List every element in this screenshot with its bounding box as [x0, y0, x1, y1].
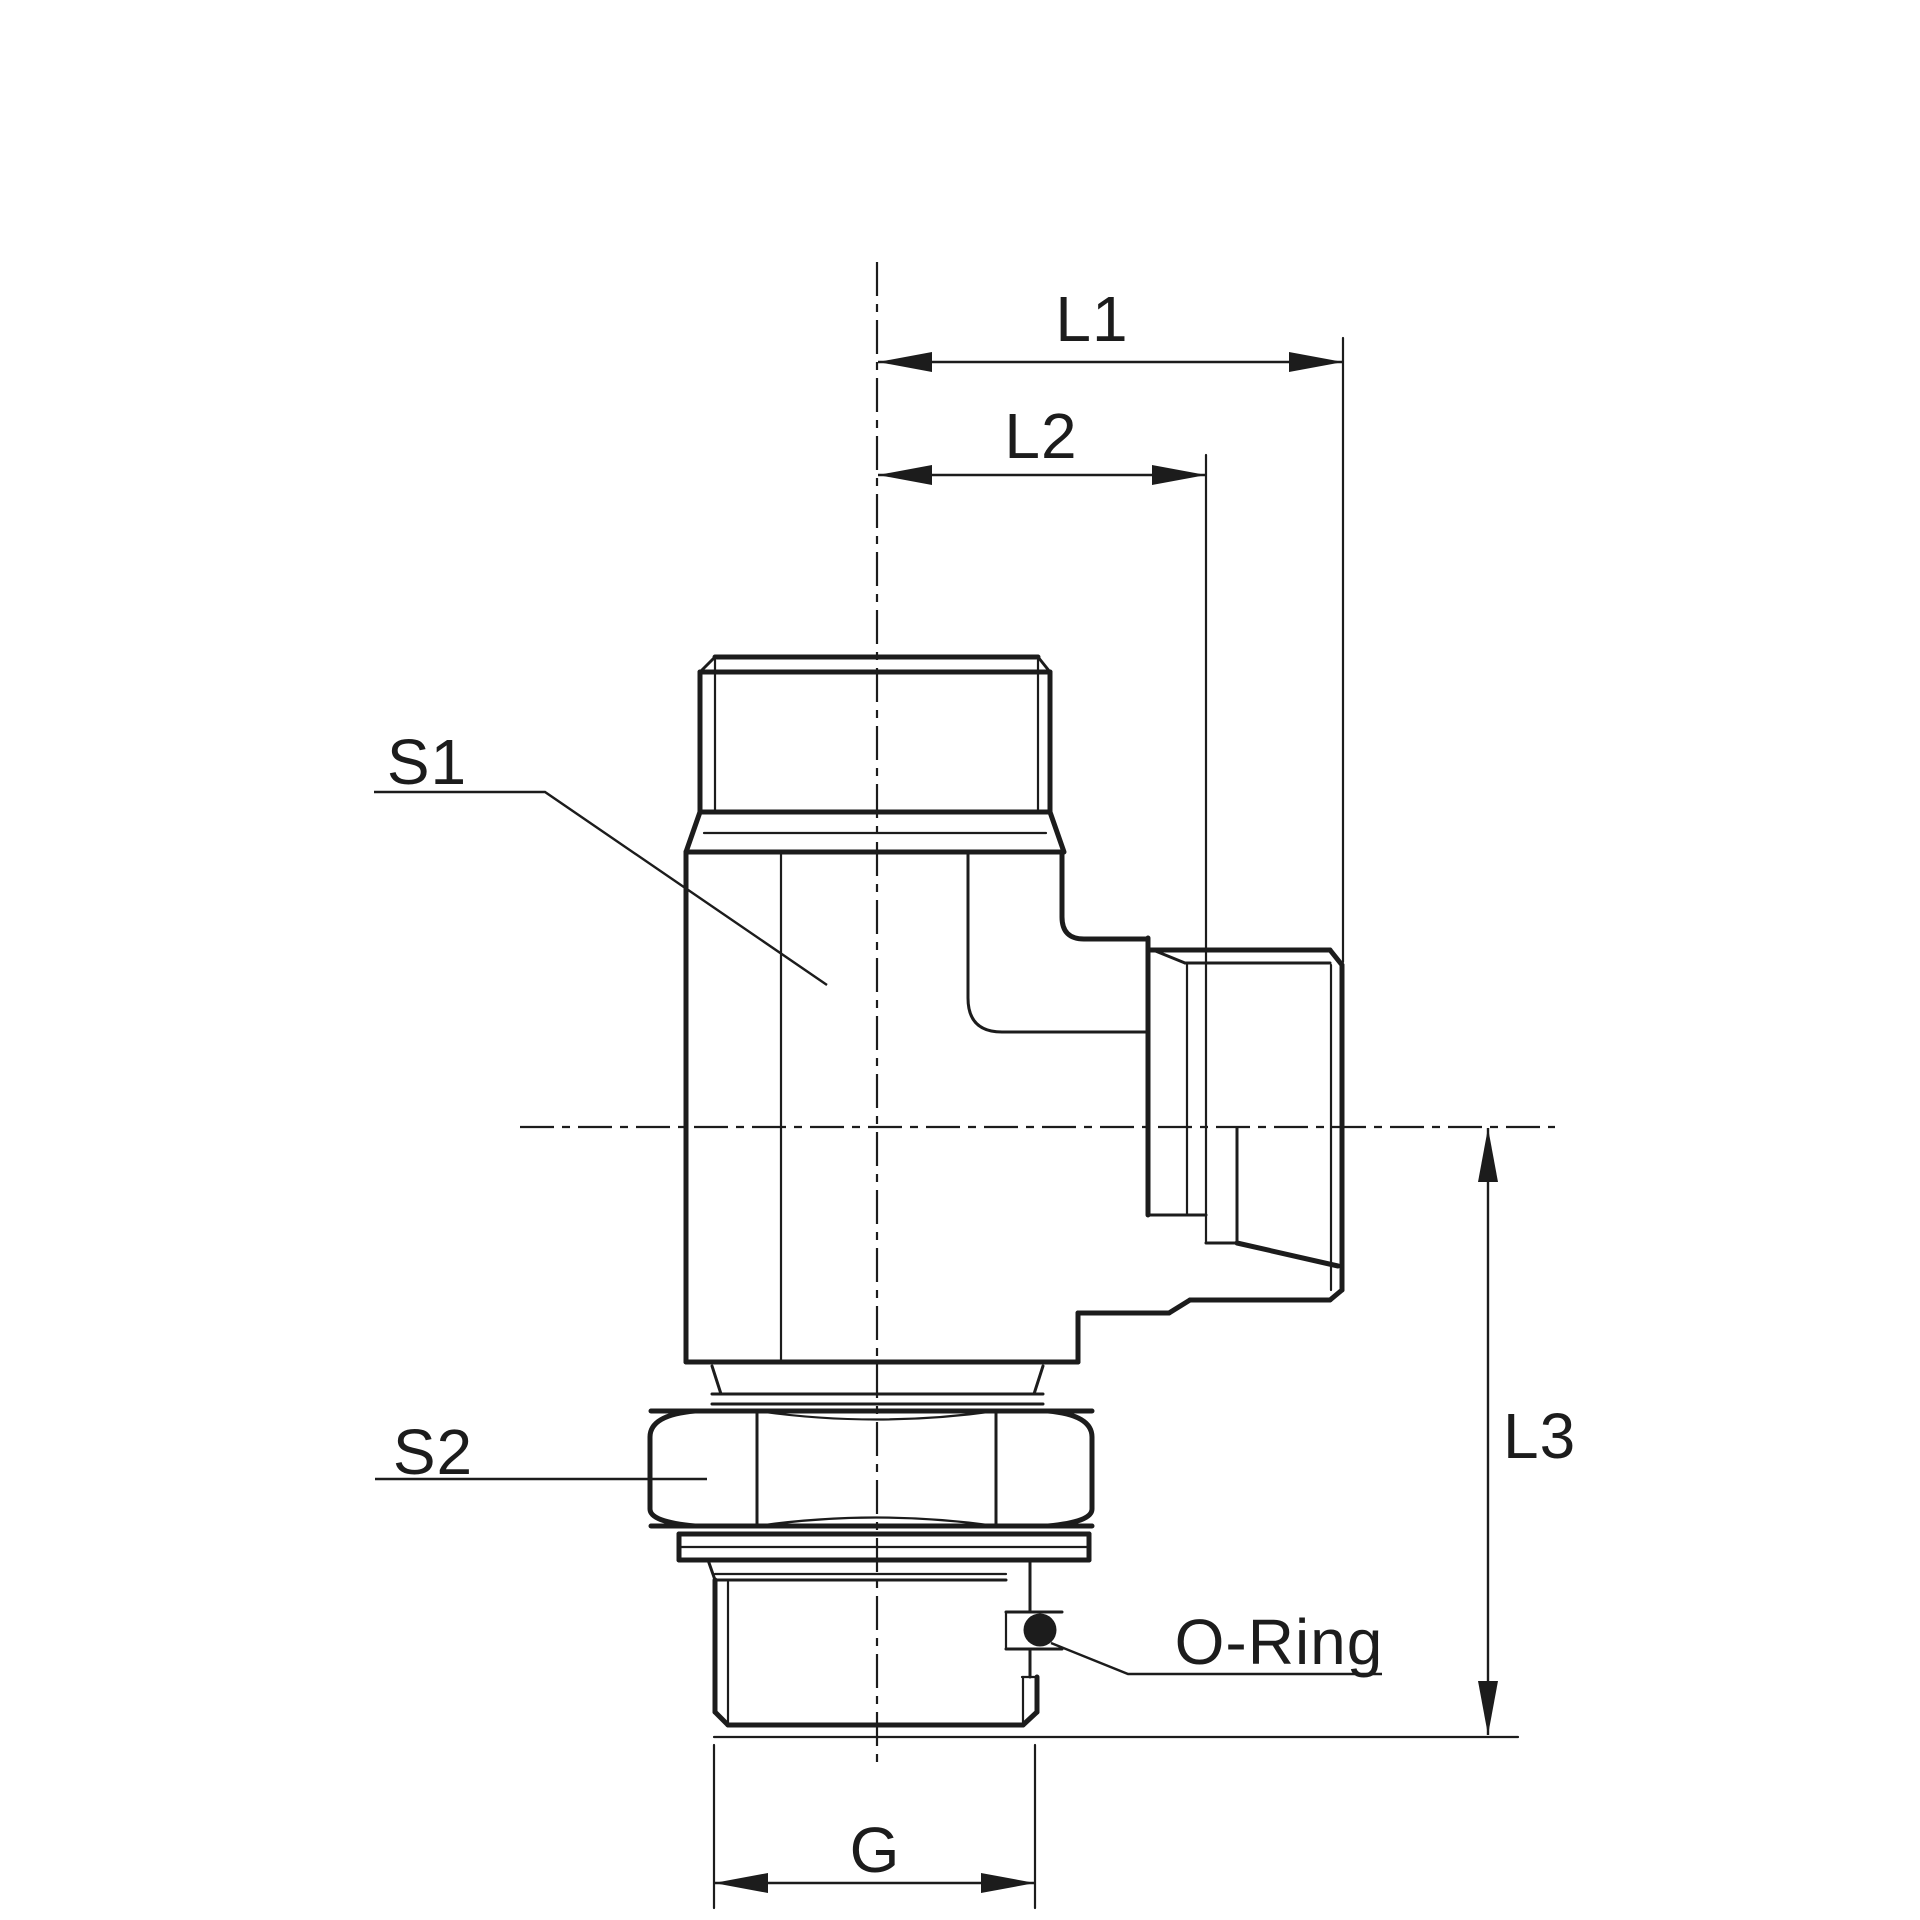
top-port-stud: [686, 657, 1064, 852]
l1-label: L1: [1055, 283, 1128, 355]
centerlines: [520, 262, 1555, 1768]
s2-label: S2: [393, 1416, 473, 1488]
s1-label: S1: [387, 726, 467, 798]
dimension-g: G: [714, 1745, 1035, 1908]
l2-arrow-right: [1152, 465, 1206, 485]
top-port-flare-right: [1050, 812, 1064, 852]
l1-arrow-left: [878, 352, 932, 372]
l3-arrow-top: [1478, 1128, 1498, 1182]
nut-left-face: [650, 1411, 695, 1526]
technical-drawing-page: L1 L2 L3 G S1 S2 O-Ring: [0, 0, 1920, 1920]
fitting-diagram: L1 L2 L3 G S1 S2 O-Ring: [0, 0, 1920, 1920]
side-port-stud: [1078, 938, 1342, 1362]
l2-label: L2: [1004, 400, 1077, 472]
l3-arrow-bottom: [1478, 1681, 1498, 1735]
o-ring: [1024, 1614, 1057, 1647]
arm-end-chamfer-top: [1330, 950, 1342, 965]
dimension-l3: L3: [1478, 1128, 1576, 1735]
g-label: G: [850, 1814, 901, 1886]
collar-chamfer-right: [1034, 1366, 1043, 1394]
top-port-flare-left: [686, 812, 700, 852]
arm-internal-cone: [1237, 1243, 1338, 1266]
g-arrow-left: [714, 1873, 768, 1893]
dimension-l1: L1: [878, 283, 1343, 962]
nut-right-face: [1048, 1411, 1092, 1526]
stud-chamfer-bottom-left: [715, 1712, 728, 1725]
g-arrow-right: [981, 1873, 1035, 1893]
dimension-l2: L2: [878, 400, 1206, 1243]
stud-chamfer-bottom-right: [1023, 1712, 1037, 1725]
locknut: [650, 1411, 1092, 1526]
l2-arrow-left: [878, 465, 932, 485]
body-right-step: [1062, 852, 1148, 939]
fitting-body: [686, 852, 1148, 1362]
s1-leader: [374, 792, 827, 985]
arm-bottom-chamfer: [1169, 1300, 1190, 1313]
washer: [679, 1534, 1089, 1560]
stud-neck-left: [708, 1560, 715, 1580]
bottom-stud: [708, 1560, 1518, 1737]
collar-chamfer-left: [712, 1366, 721, 1394]
l1-arrow-right: [1289, 352, 1343, 372]
body-hex-flat-right-step: [968, 852, 1148, 1032]
l3-label: L3: [1503, 1400, 1576, 1472]
oring-label: O-Ring: [1175, 1606, 1384, 1678]
